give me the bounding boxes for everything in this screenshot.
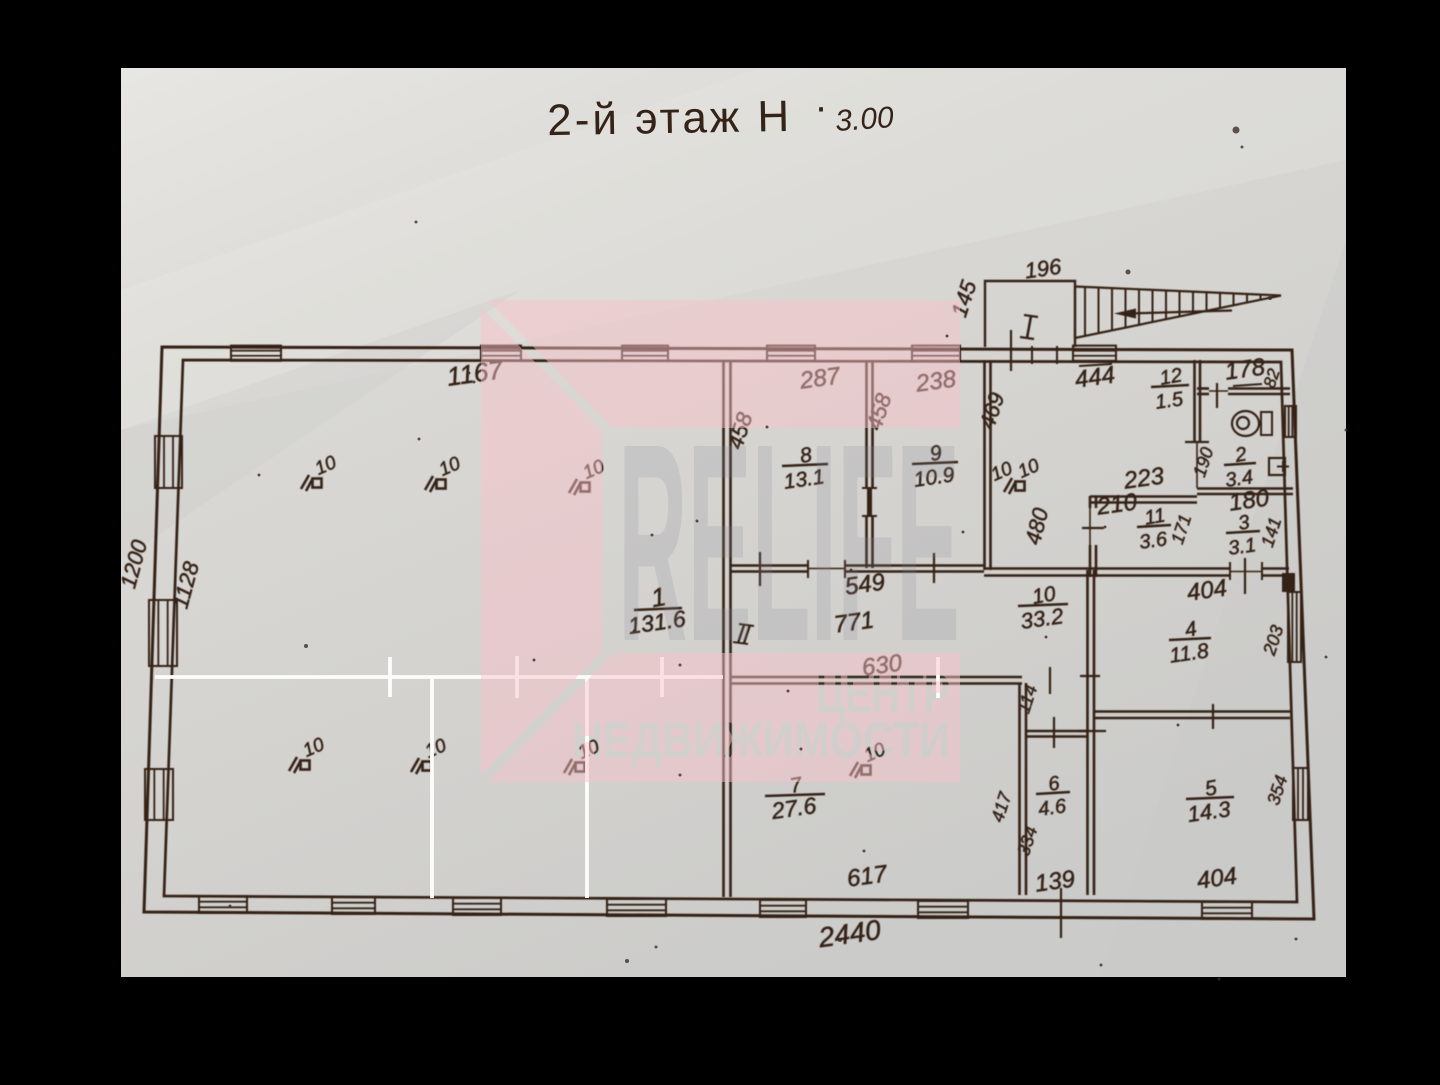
svg-text:139: 139 xyxy=(1033,865,1076,897)
svg-text:·: · xyxy=(814,85,827,129)
svg-text:3.6: 3.6 xyxy=(1138,528,1169,554)
svg-text:3.00: 3.00 xyxy=(834,101,895,138)
svg-text:210: 210 xyxy=(1094,488,1139,521)
svg-text:1.5: 1.5 xyxy=(1154,388,1185,414)
svg-text:2-й этаж Н: 2-й этаж Н xyxy=(547,92,793,145)
svg-text:404: 404 xyxy=(1195,862,1238,894)
svg-text:404: 404 xyxy=(1185,574,1228,606)
svg-text:196: 196 xyxy=(1023,254,1064,284)
svg-text:3.4: 3.4 xyxy=(1224,466,1255,492)
svg-text:4.6: 4.6 xyxy=(1037,795,1068,821)
svg-text:3.1: 3.1 xyxy=(1227,534,1258,560)
svg-text:RELIFE: RELIFE xyxy=(618,385,960,700)
svg-text:617: 617 xyxy=(845,860,890,893)
